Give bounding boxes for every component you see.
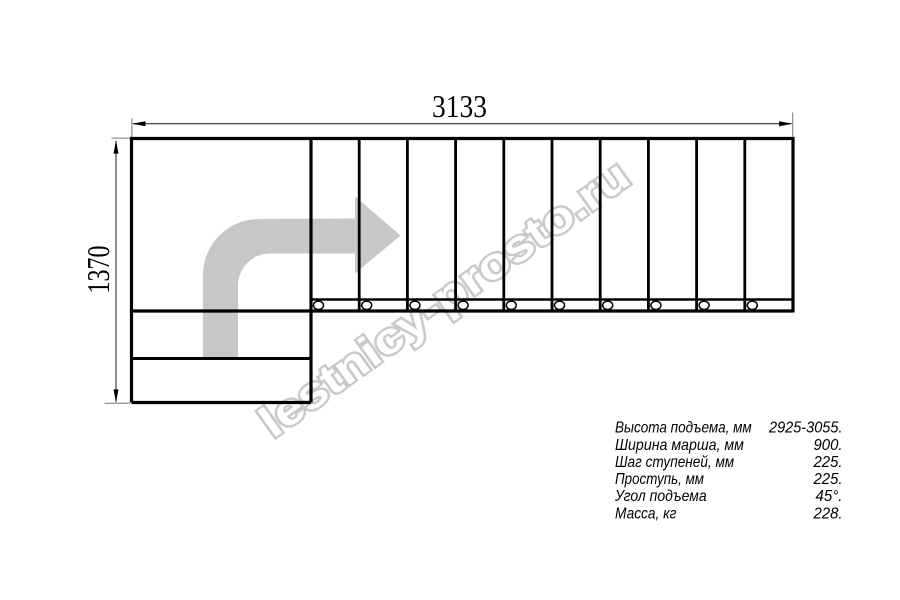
svg-text:45°.: 45°.: [816, 488, 843, 505]
svg-text:Масса, кг: Масса, кг: [615, 505, 676, 522]
svg-text:Проступь, мм: Проступь, мм: [615, 471, 704, 488]
svg-text:Шаг ступеней, мм: Шаг ступеней, мм: [615, 454, 734, 471]
svg-text:900.: 900.: [814, 437, 843, 454]
svg-text:2925-3055.: 2925-3055.: [768, 420, 842, 437]
svg-text:1370: 1370: [81, 246, 116, 294]
svg-text:Высота подъема, мм: Высота подъема, мм: [615, 420, 752, 437]
svg-text:Ширина марша, мм: Ширина марша, мм: [615, 437, 744, 454]
svg-text:225.: 225.: [813, 454, 843, 471]
svg-text:3133: 3133: [432, 89, 487, 124]
svg-text:225.: 225.: [813, 471, 843, 488]
svg-text:Угол подъема: Угол подъема: [614, 488, 707, 505]
svg-text:228.: 228.: [813, 505, 843, 522]
